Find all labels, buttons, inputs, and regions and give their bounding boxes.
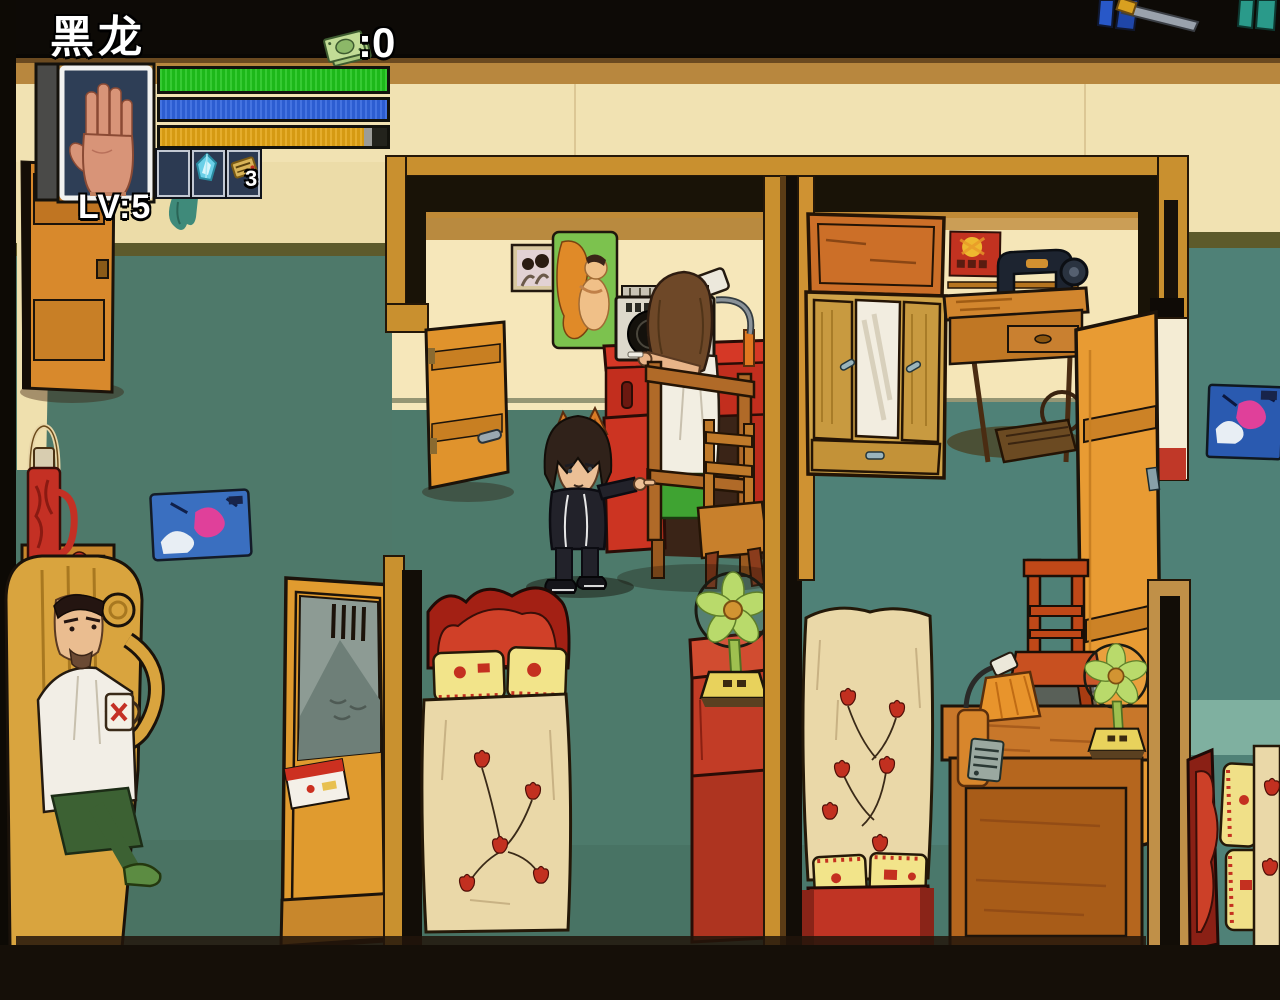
floor-band xyxy=(0,936,1280,1000)
mug-with-x xyxy=(106,694,139,730)
divider-post-middle xyxy=(764,176,802,950)
mana-bar-fill xyxy=(160,100,387,119)
money-value: :0 xyxy=(358,22,395,64)
item-count-badge: 3 xyxy=(245,168,257,190)
stamina-bar xyxy=(157,125,390,149)
tulip-bed-middle xyxy=(422,588,571,932)
teal-figure-poster xyxy=(1238,0,1276,30)
health-bar-fill xyxy=(160,69,387,91)
stamina-bar-fill xyxy=(160,128,364,146)
hud-side-bar xyxy=(36,64,58,200)
pinup-poster xyxy=(553,232,617,348)
game-screen: 黑龙 :0 LV:5 3 xyxy=(0,0,1280,1000)
item-slot-ice-crystal[interactable] xyxy=(192,150,225,197)
small-radio[interactable] xyxy=(968,738,1004,781)
mirror-wardrobe-left xyxy=(281,578,397,948)
item-slot-empty[interactable] xyxy=(157,150,190,197)
divider-post-left xyxy=(384,556,422,950)
left-wall-poster xyxy=(150,489,251,560)
level-label: LV:5 xyxy=(78,190,151,224)
player-portrait[interactable] xyxy=(58,64,154,202)
ice-crystal-icon xyxy=(194,152,220,184)
middle-room-door[interactable] xyxy=(426,322,508,488)
health-bar xyxy=(157,66,390,94)
large-wardrobe xyxy=(806,214,946,478)
tulip-bed-right xyxy=(802,608,934,953)
player-name: 黑龙 xyxy=(50,16,146,60)
couple-photo xyxy=(512,245,556,291)
mana-bar xyxy=(157,97,390,122)
award-poster xyxy=(950,232,1001,277)
stamina-bar-nub xyxy=(364,128,372,146)
far-right-poster xyxy=(1207,385,1280,460)
cigarette-box[interactable] xyxy=(285,759,349,808)
